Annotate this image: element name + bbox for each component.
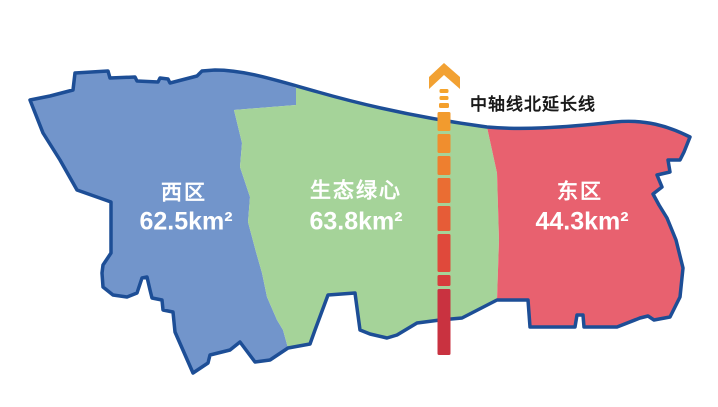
axis-dash — [438, 275, 451, 286]
west-district-area: 62.5km² — [139, 210, 232, 235]
axis-dash — [438, 178, 451, 203]
west-district-name: 西区 — [161, 183, 207, 204]
axis-arrow-icon — [429, 63, 460, 89]
axis-dash — [438, 156, 451, 175]
axis-dash — [440, 89, 449, 93]
districts-map-svg — [0, 0, 718, 407]
axis-extension-label: 中轴线北延长线 — [470, 90, 596, 115]
east-district-area: 44.3km² — [535, 210, 628, 235]
axis-dash-line — [438, 89, 451, 355]
green-heart-name: 生态绿心 — [310, 181, 402, 202]
green-heart-area: 63.8km² — [309, 210, 402, 235]
axis-dash — [438, 112, 451, 131]
axis-dash — [438, 234, 451, 272]
axis-dash — [438, 134, 451, 153]
axis-dash — [438, 206, 451, 231]
axis-dash — [440, 96, 449, 100]
axis-dash — [439, 103, 449, 108]
planning-map: 中轴线北延长线 西区 62.5km² 生态绿心 63.8km² 东区 44.3k… — [0, 0, 718, 407]
axis-dash — [438, 289, 451, 355]
east-district-name: 东区 — [557, 182, 603, 203]
